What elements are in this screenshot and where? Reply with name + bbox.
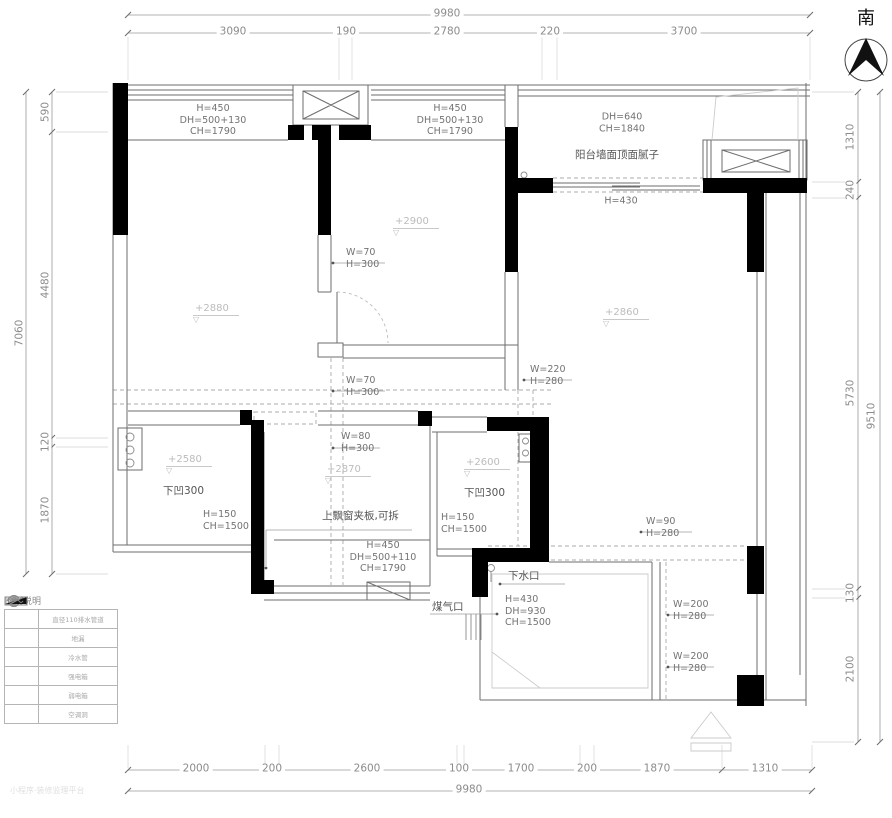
dim-left-seg-4: 1870 (41, 494, 52, 527)
bath-window-note: H=430 DH=930 CH=1500 (505, 594, 551, 629)
legend-row: 空调洞 (5, 704, 117, 723)
dim-bottom-total: 9980 (453, 785, 486, 796)
beam-note-w200-lower: W=200 H=280 (673, 651, 709, 674)
dim-bottom-seg-6: 200 (574, 764, 600, 775)
beam-note-w90: W=90 H=280 (646, 516, 679, 539)
watermark: 小程序·装修监理平台 (10, 785, 85, 796)
floor-plan-page: 9980 3090 190 2780 220 3700 2000 200 260… (0, 0, 892, 818)
legend: 图例说明 直径110排水管道 地漏 冷水管 强电箱 (4, 594, 118, 724)
dim-left-seg-1: 590 (41, 99, 52, 125)
sill-note-right: H=150 CH=1500 (441, 512, 487, 535)
window-note-top-left: H=450 DH=500+130 CH=1790 (180, 103, 247, 138)
dim-right-seg-2: 240 (846, 177, 857, 203)
weak-power-symbol-icon (5, 686, 39, 704)
balcony-finish-note: 阳台墙面顶面腻子 (575, 147, 659, 162)
compass-icon (845, 38, 887, 81)
cold-water-symbol-icon (5, 648, 39, 666)
beam-note-w80: W=80 H=300 (341, 431, 374, 454)
gas-pipe-icon (466, 614, 481, 640)
dim-left-seg-3: 120 (41, 429, 52, 455)
level-mark-2900: +2900▽ (393, 216, 439, 236)
legend-row: 强电箱 (5, 666, 117, 685)
beam-note-w200-upper: W=200 H=280 (673, 599, 709, 622)
dim-top-seg-4: 220 (537, 27, 563, 38)
dim-right-total: 9510 (867, 400, 878, 433)
dim-top-seg-1: 3090 (217, 27, 250, 38)
recess-note-left: 下凹300 (163, 483, 204, 498)
dim-top-seg-5: 3700 (668, 27, 701, 38)
gas-label: 煤气口 (432, 599, 464, 614)
dim-bottom-seg-4: 100 (446, 764, 472, 775)
level-mark-2870: +2870▽ (325, 464, 371, 484)
legend-table: 直径110排水管道 地漏 冷水管 强电箱 弱电箱 (4, 609, 118, 724)
plumbing-fixtures (126, 172, 529, 640)
level-triangle-icon: ▽ (325, 477, 371, 484)
level-triangle-icon: ▽ (193, 316, 239, 323)
drain-point-icon (488, 565, 495, 572)
dim-top-seg-2: 190 (333, 27, 359, 38)
window-note-top-middle: H=450 DH=500+130 CH=1790 (417, 103, 484, 138)
dim-bottom-seg-2: 200 (259, 764, 285, 775)
floor-drain-symbol-icon (5, 629, 39, 647)
dim-bottom-seg-1: 2000 (180, 764, 213, 775)
dim-top-total: 9980 (431, 9, 464, 20)
door-swing-arc (337, 292, 388, 343)
dim-right-seg-4: 130 (846, 580, 857, 606)
dim-right-seg-3: 5730 (846, 377, 857, 410)
dim-right-seg-5: 2100 (846, 653, 857, 686)
dim-right-seg-1: 1310 (846, 121, 857, 154)
level-triangle-icon: ▽ (393, 229, 439, 236)
beam-note-w70-upper: W=70 H=300 (346, 247, 379, 270)
level-triangle-icon: ▽ (603, 320, 649, 327)
recess-note-right: 下凹300 (464, 485, 505, 500)
dim-left-total: 7060 (15, 317, 26, 350)
dim-top-seg-3: 2780 (431, 27, 464, 38)
strong-power-symbol-icon (5, 667, 39, 685)
level-mark-2580: +2580▽ (166, 454, 212, 474)
level-mark-2860: +2860▽ (603, 307, 649, 327)
level-mark-2600: +2600▽ (464, 457, 510, 477)
legend-row: 冷水管 (5, 647, 117, 666)
drain-pipe-symbol-icon (5, 610, 39, 628)
dim-left-seg-2: 4480 (41, 269, 52, 302)
sill-note-left: H=150 CH=1500 (203, 509, 249, 532)
dim-bottom-seg-3: 2600 (351, 764, 384, 775)
flip-window-note: 上飘窗夹板,可拆 (322, 508, 399, 523)
level-triangle-icon: ▽ (464, 470, 510, 477)
dim-bottom-seg-8: 1310 (749, 764, 782, 775)
beam-note-w70-lower: W=70 H=300 (346, 375, 379, 398)
level-triangle-icon: ▽ (166, 467, 212, 474)
compass-south-label: 南 (857, 4, 875, 30)
beam-note-w220: W=220 H=280 (530, 364, 566, 387)
balcony-door-height-note: DH=640 CH=1840 (599, 112, 645, 135)
ac-hole-symbol-icon (5, 705, 39, 723)
legend-row: 地漏 (5, 628, 117, 647)
level-mark-2880: +2880▽ (193, 303, 239, 323)
dimension-extension-lines (56, 37, 854, 768)
window-note-bottom-middle: H=450 DH=500+110 CH=1790 (350, 540, 417, 575)
legend-row: 直径110排水管道 (5, 610, 117, 628)
balcony-sill-note: H=430 (604, 195, 637, 207)
drain-label: 下水口 (508, 568, 540, 583)
dim-bottom-seg-5: 1700 (505, 764, 538, 775)
dim-bottom-seg-7: 1870 (641, 764, 674, 775)
legend-row: 弱电箱 (5, 685, 117, 704)
